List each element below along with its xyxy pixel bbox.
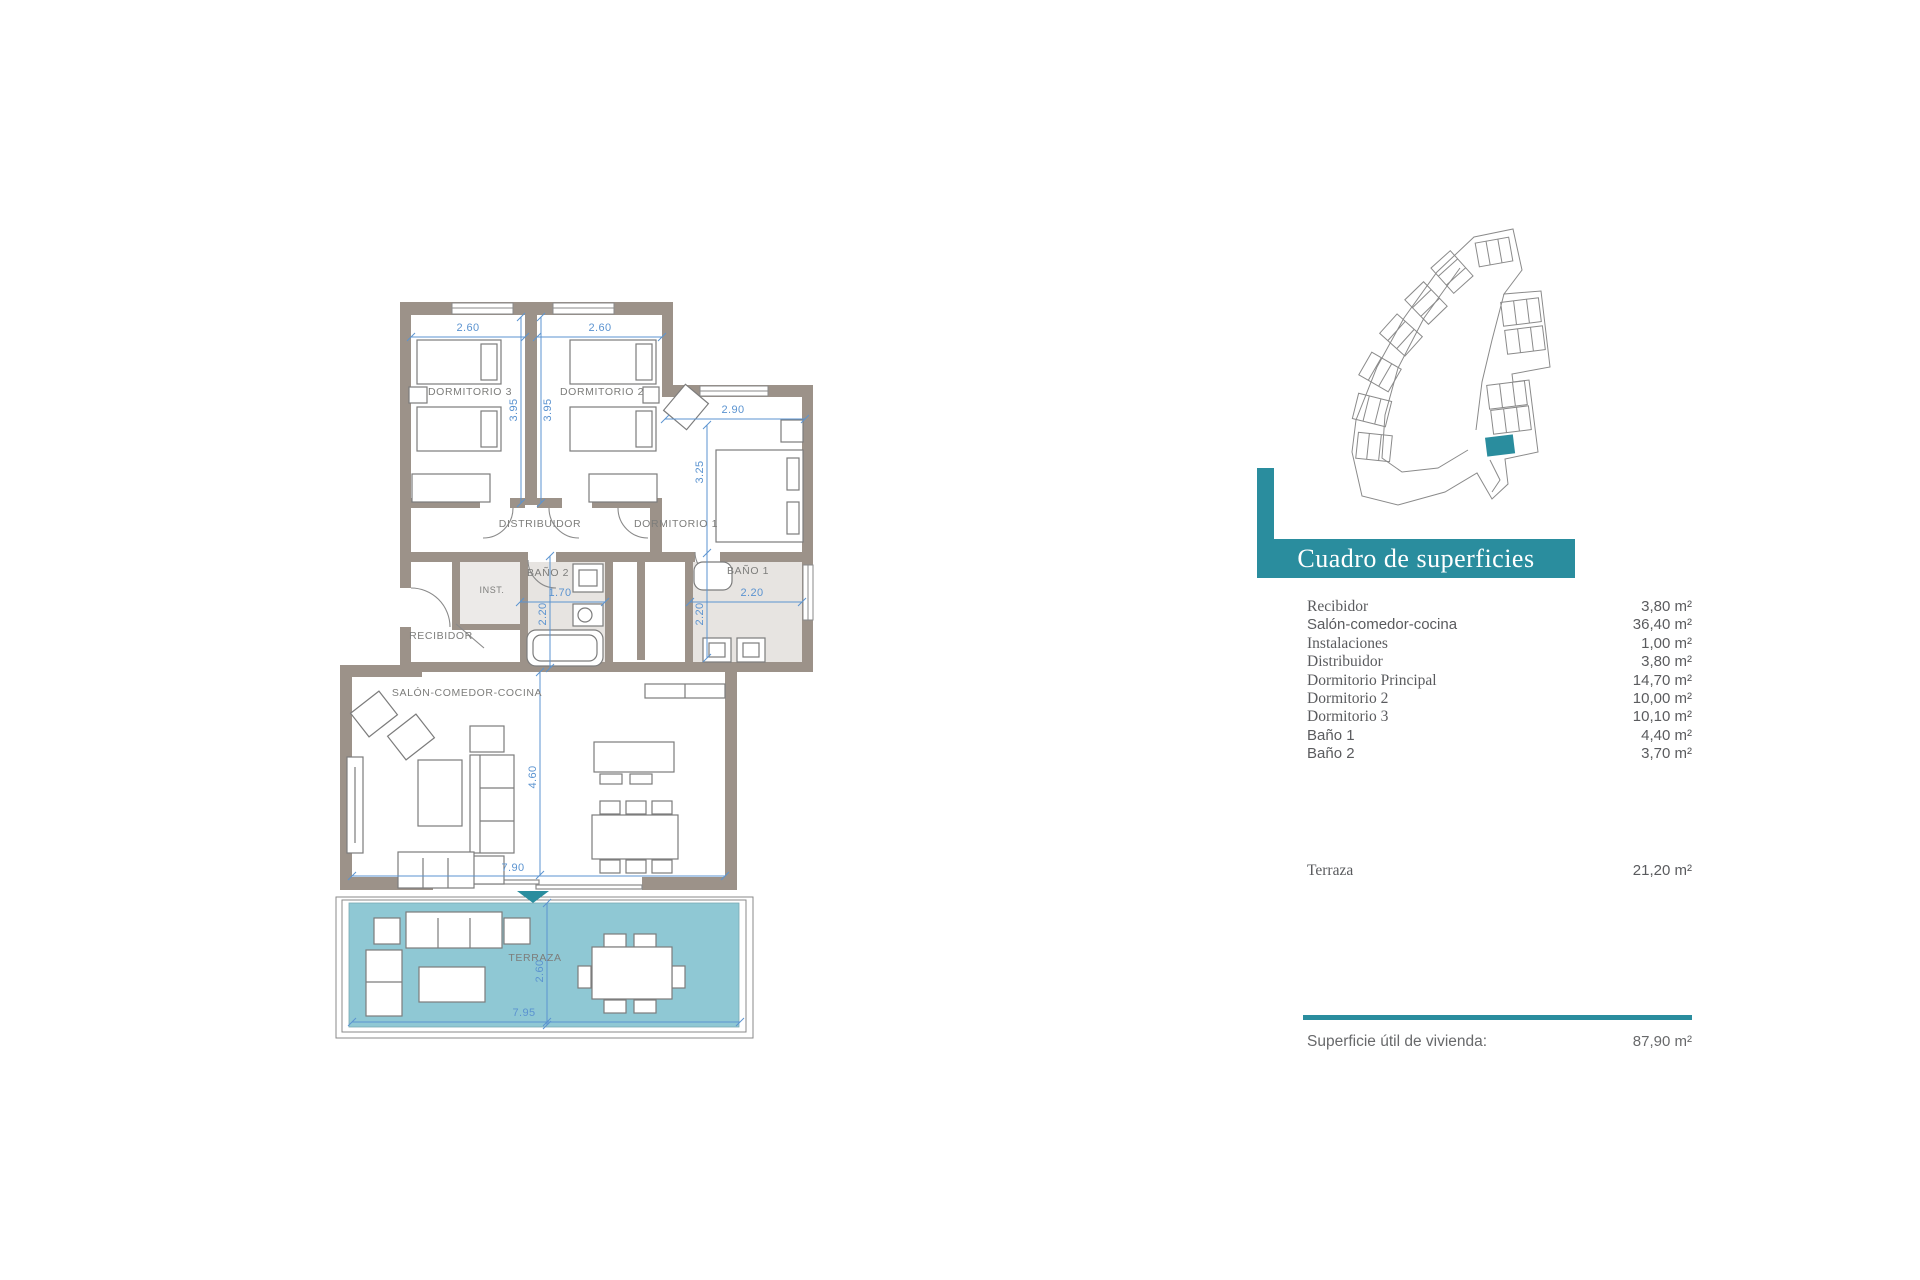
sink [573,564,603,592]
row-value: 3,80 m² [1641,598,1692,615]
coffee-table [419,967,485,1002]
kitchen-counter [645,684,725,698]
kitchen-island [594,742,674,784]
sofa [470,755,514,853]
dim-dorm2-depth: 3.95 [542,398,554,421]
dim-dorm2-width: 2.60 [588,322,611,334]
total-row: Superficie útil de vivienda: 87,90 m² [1303,1033,1692,1051]
table-row: Dormitorio 3 10,10 m² [1303,708,1692,726]
room-label-distribuidor: DISTRIBUIDOR [499,518,581,530]
teal-divider [1303,1015,1692,1020]
row-value: 10,00 m² [1633,690,1692,707]
total-value: 87,90 m² [1633,1033,1692,1050]
dim-terraza-depth: 2.60 [534,959,546,982]
surfaces-table: Recibidor 3,80 m² Salón-comedor-cocina 3… [1303,598,1692,764]
entry-door-opening [399,588,412,627]
row-value: 1,00 m² [1641,635,1692,652]
tv-unit [347,757,363,853]
site-units [1352,237,1545,461]
row-value: 14,70 m² [1633,672,1692,689]
dining-table [592,801,678,873]
room-label-instalaciones: INST. [479,585,504,595]
table-row: Baño 2 3,70 m² [1303,745,1692,763]
highlighted-unit [1485,434,1515,456]
dim-dorm1-width: 2.90 [721,404,744,416]
room-label-recibidor: RECIBIDOR [409,630,473,642]
row-label: Distribuidor [1303,653,1383,671]
side-table [470,856,504,884]
side-table [470,726,504,752]
room-label-dormitorio-3: DORMITORIO 3 [428,386,512,398]
dim-dorm3-depth: 3.95 [508,398,520,421]
dim-salon-depth: 4.60 [527,765,539,788]
row-value: 4,40 m² [1641,727,1692,744]
terrace-row: Terraza 21,20 m² [1303,862,1692,880]
room-label-dormitorio-2: DORMITORIO 2 [560,386,644,398]
table-row: Dormitorio 2 10,00 m² [1303,690,1692,708]
floor-plan-sheet: DORMITORIO 3 DORMITORIO 2 DORMITORIO 1 D… [0,0,1920,1280]
side-table [504,918,530,944]
row-label: Baño 2 [1303,745,1355,762]
bathtub [527,630,603,666]
room-label-bano-1: BAÑO 1 [727,565,769,577]
accent-bracket [1257,468,1274,543]
dim-bano1-depth: 2.20 [694,602,706,625]
dim-terraza-width: 7.95 [512,1007,535,1019]
table-row: Distribuidor 3,80 m² [1303,653,1692,671]
surfaces-header: Cuadro de superficies [1257,539,1575,578]
table-row: Baño 1 4,40 m² [1303,727,1692,745]
room-label-salon: SALÓN-COMEDOR-COCINA [392,687,542,699]
dim-dorm1-depth: 3.25 [694,460,706,483]
bed [570,407,656,451]
row-value: 10,10 m² [1633,708,1692,725]
site-plan [1352,229,1550,505]
row-value: 3,70 m² [1641,745,1692,762]
table-row: Recibidor 3,80 m² [1303,598,1692,616]
table-row: Instalaciones 1,00 m² [1303,635,1692,653]
coffee-table [418,760,462,826]
sink [737,638,765,662]
side-table [374,918,400,944]
row-value: 36,40 m² [1633,616,1692,633]
total-label: Superficie útil de vivienda: [1303,1033,1487,1051]
bed [417,407,501,451]
site-boundary [1352,229,1550,505]
surfaces-title: Cuadro de superficies [1297,544,1534,574]
sofa [398,852,474,888]
row-label: Recibidor [1303,598,1368,616]
room-label-dormitorio-1: DORMITORIO 1 [634,518,718,530]
row-label: Terraza [1303,862,1353,880]
dim-bano2-width: 1.70 [548,587,571,599]
armchair [388,714,435,760]
row-label: Baño 1 [1303,727,1355,744]
nightstand [643,387,659,403]
dim-bano2-depth: 2.20 [537,602,549,625]
room-label-bano-2: BAÑO 2 [527,567,569,579]
dim-dorm3-width: 2.60 [456,322,479,334]
dim-bano1-width: 2.20 [740,587,763,599]
row-label: Dormitorio 2 [1303,690,1388,708]
row-value: 3,80 m² [1641,653,1692,670]
lounge-chair [366,950,402,1016]
nightstand [781,420,803,442]
wardrobe [412,474,490,502]
row-label: Salón-comedor-cocina [1303,616,1457,633]
table-row: Salón-comedor-cocina 36,40 m² [1303,616,1692,634]
armchair [351,691,398,737]
entry-door-arc [411,588,450,627]
double-bed [716,450,803,542]
row-label: Dormitorio Principal [1303,672,1437,690]
table-row: Dormitorio Principal 14,70 m² [1303,672,1692,690]
nightstand [409,387,427,403]
wardrobe [589,474,657,502]
row-label: Instalaciones [1303,635,1388,653]
row-value: 21,20 m² [1633,862,1692,879]
dim-salon-width: 7.90 [501,862,524,874]
outdoor-sofa [406,912,502,948]
toilet [573,604,603,626]
row-label: Dormitorio 3 [1303,708,1388,726]
bed [570,340,656,384]
bed [417,340,501,384]
